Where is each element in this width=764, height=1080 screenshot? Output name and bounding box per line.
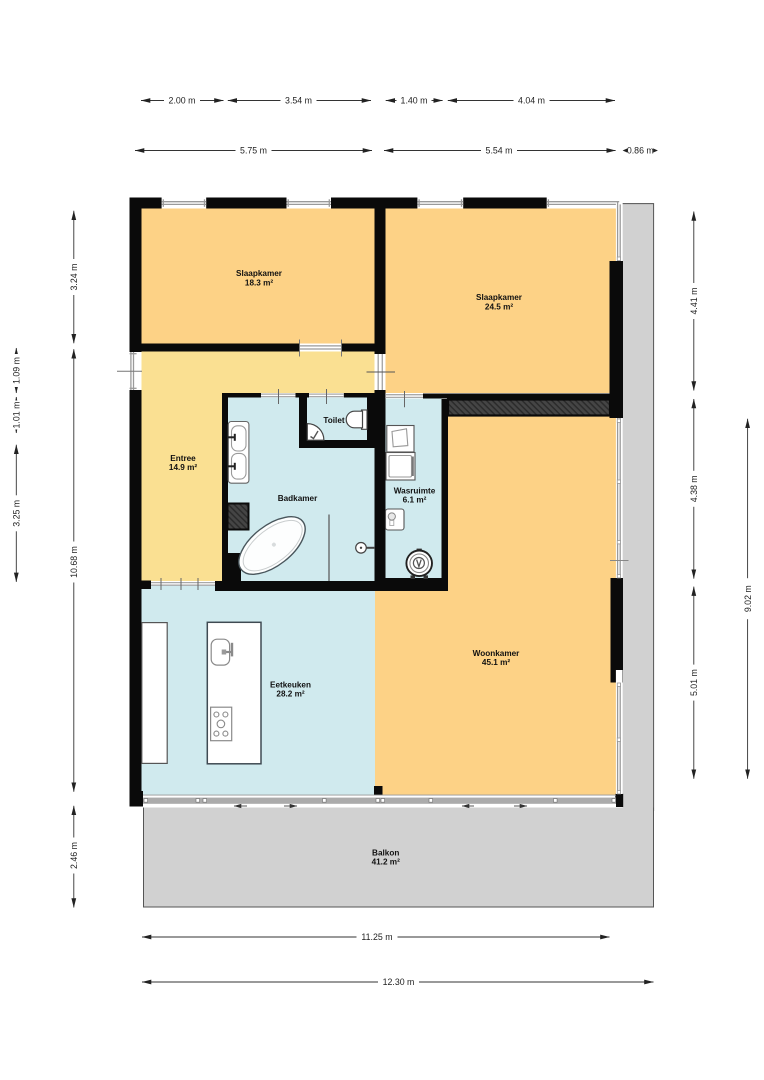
svg-text:4.41 m: 4.41 m <box>689 288 699 315</box>
svg-text:Balkon41.2 m²: Balkon41.2 m² <box>372 848 400 866</box>
svg-text:1.01 m: 1.01 m <box>12 402 22 429</box>
svg-text:2.46 m: 2.46 m <box>69 842 79 869</box>
svg-text:5.54 m: 5.54 m <box>486 146 513 156</box>
svg-text:0.86 m: 0.86 m <box>627 146 654 156</box>
svg-text:9.02 m: 9.02 m <box>743 585 753 612</box>
svg-text:1.09 m: 1.09 m <box>12 357 22 384</box>
svg-text:1.40 m: 1.40 m <box>401 96 428 106</box>
svg-text:4.38 m: 4.38 m <box>689 475 699 502</box>
svg-text:3.25 m: 3.25 m <box>12 500 22 527</box>
svg-text:11.25 m: 11.25 m <box>361 932 392 942</box>
svg-text:Toilet: Toilet <box>323 416 344 425</box>
svg-text:2.00 m: 2.00 m <box>169 96 196 106</box>
svg-text:3.24 m: 3.24 m <box>69 264 79 291</box>
svg-text:12.30 m: 12.30 m <box>383 977 415 987</box>
svg-text:Entree14.9 m²: Entree14.9 m² <box>169 454 197 472</box>
svg-text:5.75 m: 5.75 m <box>240 146 267 156</box>
svg-text:5.01 m: 5.01 m <box>689 669 699 696</box>
svg-text:10.68 m: 10.68 m <box>69 546 79 578</box>
svg-text:4.04 m: 4.04 m <box>518 96 545 106</box>
svg-text:3.54 m: 3.54 m <box>285 96 312 106</box>
svg-text:Badkamer: Badkamer <box>278 494 318 503</box>
